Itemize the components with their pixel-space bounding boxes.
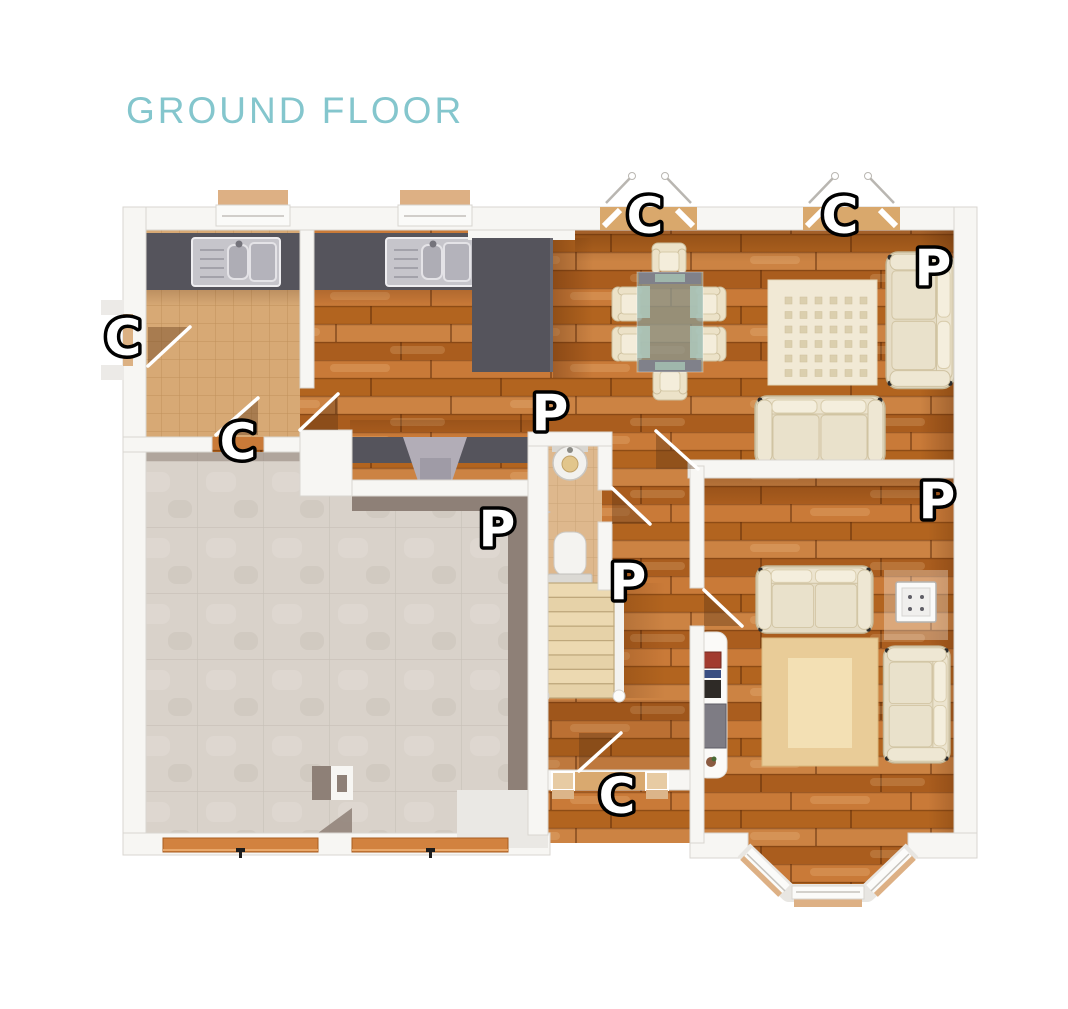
utility-counter: [146, 233, 300, 290]
garage-pillar: [312, 766, 353, 800]
sofa: [884, 646, 951, 763]
sofa: [755, 396, 885, 466]
marker-c-utility-door: C: [220, 413, 257, 471]
dining-chair: [652, 243, 686, 273]
marker-p-kitchen: P: [532, 384, 569, 442]
window-icon: [216, 190, 290, 226]
marker-c-french-door-1: C: [627, 187, 664, 245]
marker-c-french-door-2: C: [822, 187, 859, 245]
side-table: [884, 570, 948, 640]
marker-c-side-door: C: [105, 309, 142, 367]
window-icon: [398, 190, 472, 226]
toilet-icon: [554, 532, 586, 576]
floor-plan-page: GROUND FLOOR: [0, 0, 1068, 1009]
kitchen-tall-units: [472, 238, 553, 372]
family-room-rug: [762, 638, 878, 766]
marker-c-front-door: C: [599, 767, 636, 825]
marker-p-family-room: P: [919, 472, 956, 530]
marker-p-living-room: P: [915, 239, 952, 297]
marker-p-hallway: P: [610, 553, 647, 611]
marker-p-garage: P: [479, 500, 516, 558]
sofa: [756, 566, 873, 633]
living-room-rug: [768, 280, 877, 385]
floor-plan: C C P C C P P P P C: [0, 0, 1068, 1009]
